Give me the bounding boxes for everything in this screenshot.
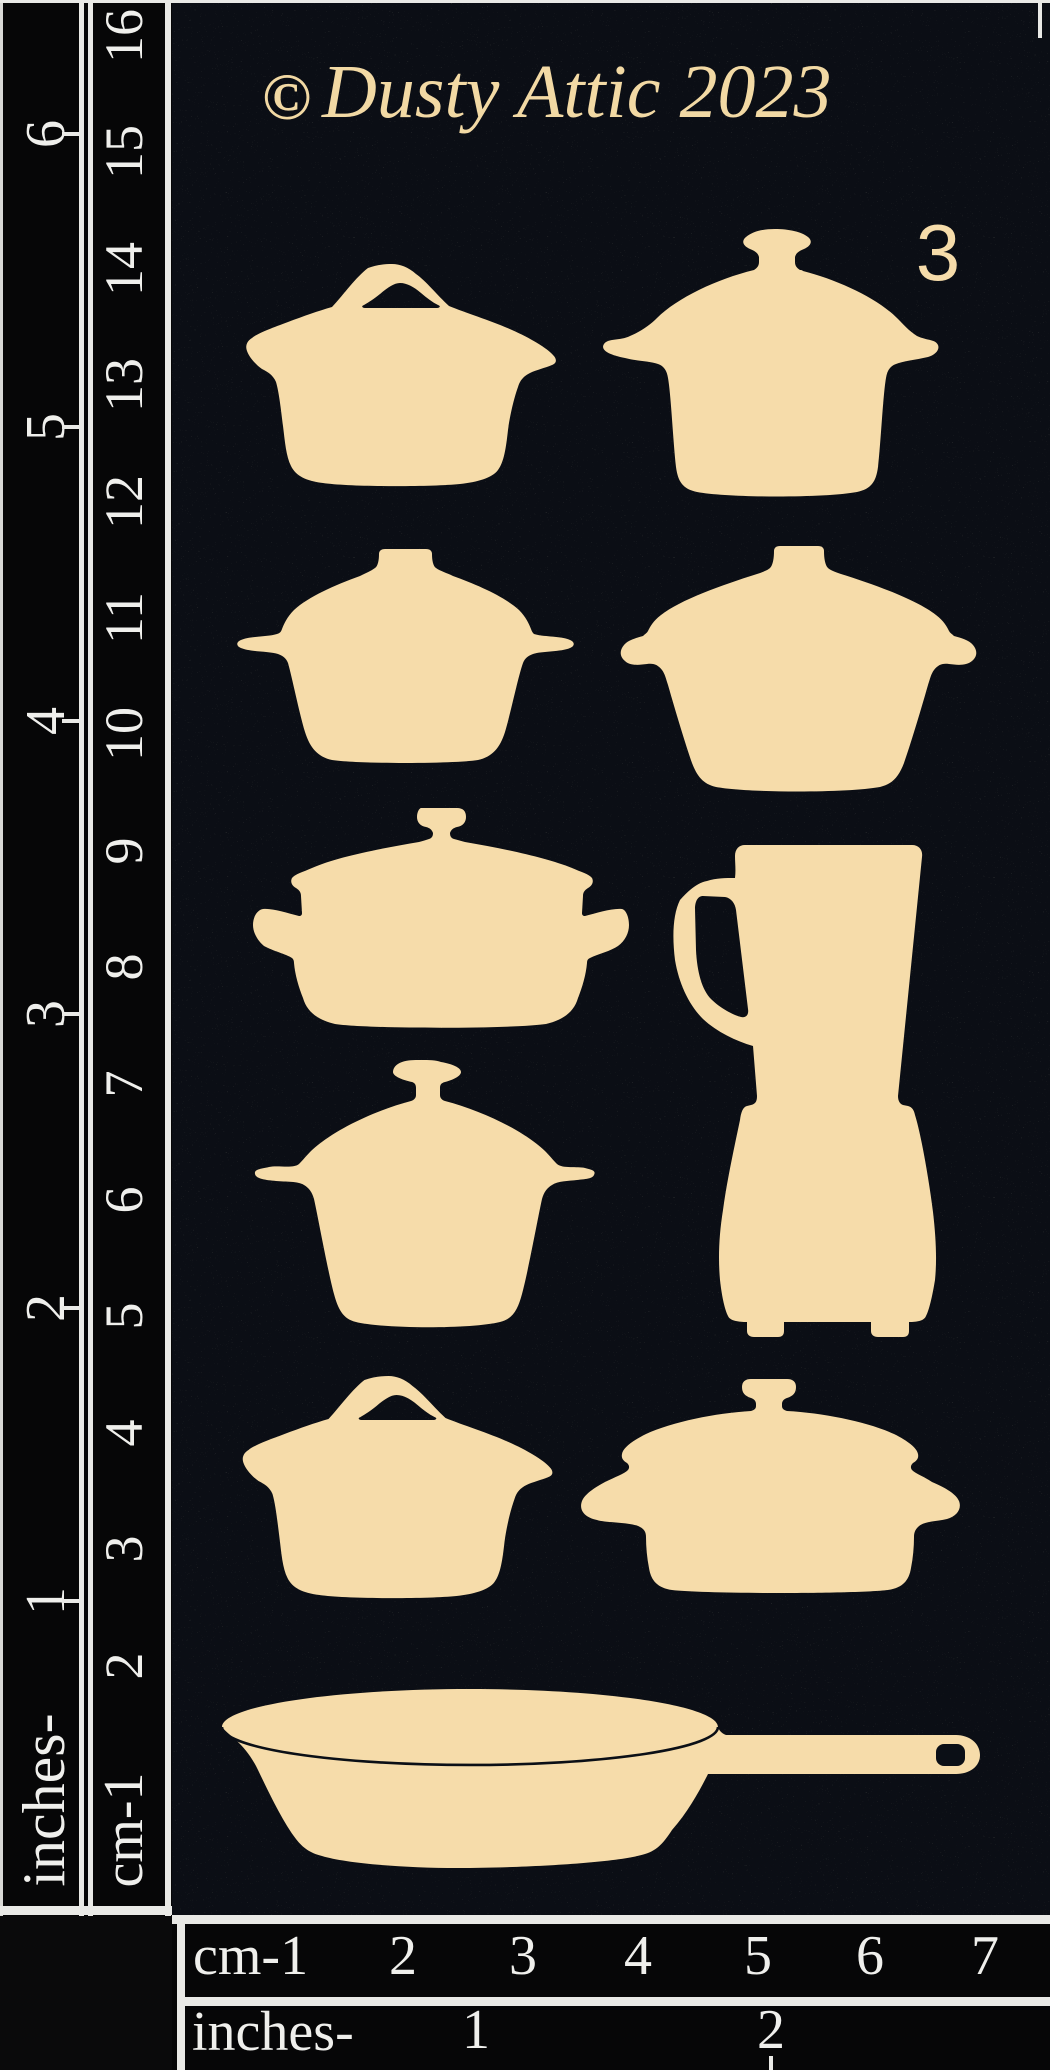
- svg-text:6: 6: [94, 1187, 154, 1214]
- svg-text:3: 3: [94, 1536, 154, 1563]
- svg-text:14: 14: [94, 242, 154, 296]
- svg-text:3: 3: [916, 208, 961, 297]
- svg-text:2: 2: [389, 1925, 417, 1987]
- svg-text:16: 16: [94, 9, 154, 63]
- svg-text:4: 4: [94, 1420, 154, 1447]
- svg-text:2: 2: [94, 1653, 154, 1680]
- svg-text:11: 11: [94, 592, 154, 644]
- svg-text:7: 7: [94, 1071, 154, 1098]
- svg-text:3: 3: [509, 1925, 537, 1987]
- svg-text:15: 15: [94, 125, 154, 179]
- svg-text:cm-1: cm-1: [193, 1925, 308, 1987]
- svg-text:9: 9: [94, 838, 154, 865]
- svg-text:4: 4: [624, 1925, 652, 1987]
- svg-text:8: 8: [94, 954, 154, 981]
- svg-text:cm-1: cm-1: [93, 1772, 155, 1887]
- svg-text:1: 1: [462, 1999, 490, 2061]
- svg-text:6: 6: [856, 1925, 884, 1987]
- svg-text:Dusty Attic 2023: Dusty Attic 2023: [321, 50, 831, 134]
- svg-text:5: 5: [744, 1925, 772, 1987]
- svg-text:inches-: inches-: [192, 2001, 354, 2063]
- svg-text:7: 7: [971, 1925, 999, 1987]
- svg-text:inches-: inches-: [11, 1713, 77, 1886]
- svg-text:10: 10: [94, 707, 154, 761]
- svg-text:12: 12: [94, 475, 154, 529]
- svg-text:5: 5: [94, 1303, 154, 1330]
- svg-text:©: ©: [262, 61, 311, 134]
- svg-text:13: 13: [94, 358, 154, 412]
- svg-text:2: 2: [757, 1999, 785, 2061]
